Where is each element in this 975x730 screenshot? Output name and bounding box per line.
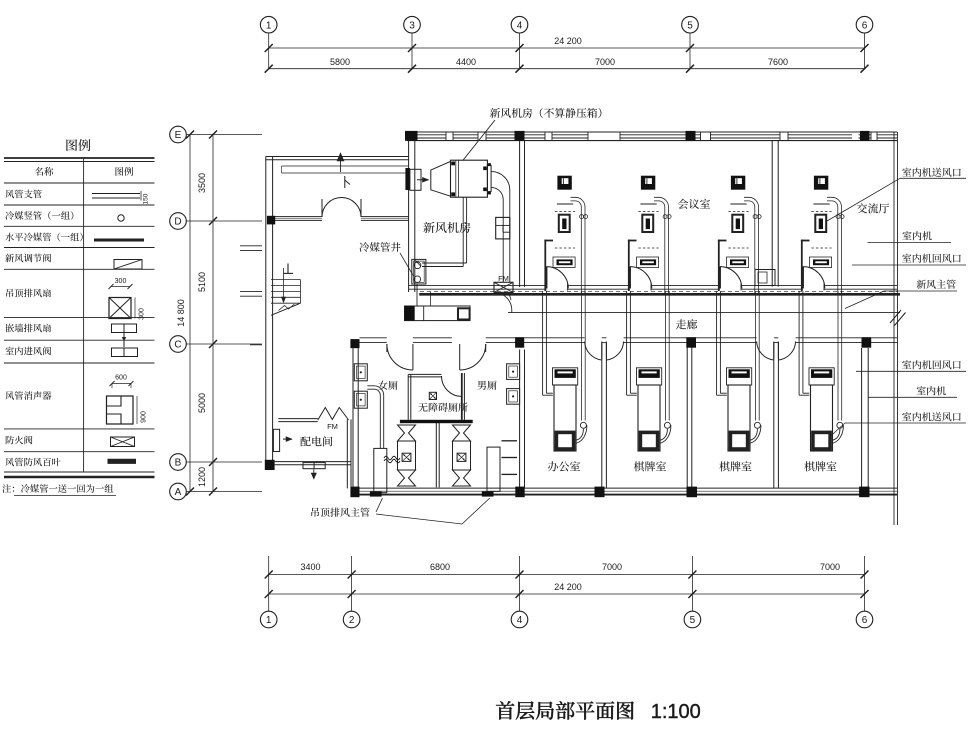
svg-text:7600: 7600 [768, 57, 788, 67]
svg-text:5: 5 [687, 20, 693, 31]
svg-text:6: 6 [862, 615, 868, 626]
svg-text:室内机: 室内机 [916, 383, 946, 398]
svg-text:吊顶排风扇: 吊顶排风扇 [5, 286, 52, 300]
svg-text:3: 3 [409, 20, 415, 31]
svg-text:室内机回风口: 室内机回风口 [902, 250, 962, 265]
svg-text:3500: 3500 [197, 173, 207, 193]
svg-text:1200: 1200 [197, 467, 207, 487]
svg-text:24 200: 24 200 [554, 582, 582, 592]
svg-text:5800: 5800 [330, 57, 350, 67]
svg-text:C: C [174, 340, 181, 351]
svg-text:FM: FM [498, 274, 509, 283]
svg-text:新风机房: 新风机房 [423, 219, 471, 236]
svg-text:名称: 名称 [34, 164, 54, 178]
svg-text:B: B [175, 458, 182, 469]
svg-text:注：冷媒管一送一回为一组: 注：冷媒管一送一回为一组 [2, 481, 114, 495]
svg-text:风管消声器: 风管消声器 [5, 388, 52, 402]
svg-text:走廊: 走廊 [676, 317, 698, 333]
svg-text:150: 150 [143, 193, 150, 204]
svg-text:防火阀: 防火阀 [5, 433, 33, 447]
svg-text:24 200: 24 200 [554, 36, 582, 46]
svg-text:新风机房（不算静压箱）: 新风机房（不算静压箱） [490, 106, 609, 121]
svg-text:图例: 图例 [65, 135, 91, 154]
svg-text:6800: 6800 [430, 562, 450, 572]
svg-text:6: 6 [862, 20, 868, 31]
svg-text:14 800: 14 800 [176, 299, 186, 327]
svg-text:5100: 5100 [197, 272, 207, 292]
svg-text:风管防风百叶: 风管防风百叶 [5, 455, 61, 469]
svg-text:男厕: 男厕 [477, 377, 497, 392]
svg-text:7000: 7000 [820, 562, 840, 572]
svg-text:900: 900 [141, 411, 148, 423]
svg-text:4: 4 [517, 615, 523, 626]
svg-text:冷媒管井: 冷媒管井 [359, 240, 401, 255]
svg-text:图例: 图例 [114, 164, 134, 178]
svg-text:会议室: 会议室 [678, 196, 711, 212]
svg-text:棋牌室: 棋牌室 [634, 459, 667, 475]
svg-text:FM: FM [327, 422, 338, 431]
svg-text:水平冷媒管（一组）: 水平冷媒管（一组） [5, 230, 89, 244]
svg-text:1: 1 [266, 615, 272, 626]
svg-text:7000: 7000 [602, 562, 622, 572]
svg-text:室内进风阀: 室内进风阀 [5, 344, 52, 358]
svg-text:300: 300 [115, 278, 127, 285]
svg-text:室内机回风口: 室内机回风口 [902, 357, 962, 372]
svg-text:室内机送风口: 室内机送风口 [902, 409, 962, 424]
svg-text:交流厅: 交流厅 [857, 201, 890, 217]
svg-text:冷媒竖管（一组）: 冷媒竖管（一组） [5, 208, 79, 222]
svg-text:1: 1 [266, 20, 272, 31]
svg-text:办公室: 办公室 [548, 459, 581, 475]
svg-text:2: 2 [349, 615, 355, 626]
svg-text:棋牌室: 棋牌室 [804, 459, 837, 475]
svg-text:新风主管: 新风主管 [916, 276, 956, 291]
svg-text:风管支管: 风管支管 [5, 187, 42, 201]
svg-text:300: 300 [139, 308, 146, 320]
svg-text:室内机: 室内机 [902, 228, 932, 243]
svg-text:600: 600 [115, 375, 127, 382]
svg-text:E: E [175, 130, 182, 141]
svg-text:5000: 5000 [197, 393, 207, 413]
svg-text:4400: 4400 [456, 57, 476, 67]
svg-text:嵌墙排风扇: 嵌墙排风扇 [5, 321, 52, 335]
svg-text:3400: 3400 [300, 562, 320, 572]
svg-text:A: A [175, 487, 182, 498]
svg-text:女厕: 女厕 [378, 377, 398, 392]
svg-text:无障碍厕所: 无障碍厕所 [418, 399, 468, 414]
svg-text:7000: 7000 [595, 57, 615, 67]
svg-text:室内机送风口: 室内机送风口 [902, 164, 962, 179]
svg-text:新风调节阀: 新风调节阀 [5, 251, 52, 265]
svg-text:棋牌室: 棋牌室 [719, 459, 752, 475]
svg-text:配电间: 配电间 [300, 434, 333, 450]
svg-text:D: D [174, 217, 181, 228]
svg-text:首层局部平面图 1:100: 首层局部平面图 1:100 [495, 695, 701, 724]
svg-text:4: 4 [517, 20, 523, 31]
svg-text:吊顶排风主管: 吊顶排风主管 [310, 504, 370, 519]
svg-text:5: 5 [690, 615, 696, 626]
